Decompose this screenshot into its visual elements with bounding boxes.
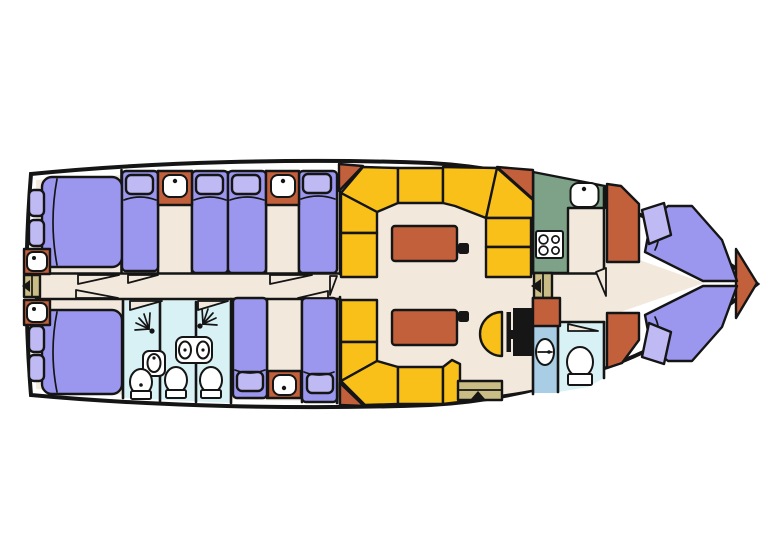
aft-cabin-lower (24, 300, 122, 394)
tap-dot (282, 386, 286, 390)
tap-dot (281, 179, 285, 183)
wardrobe (607, 313, 639, 368)
upper-single-beds (122, 171, 337, 273)
bow-tip-locker (736, 249, 757, 318)
deck-plan-svg (0, 0, 780, 551)
toilet-cistern (166, 390, 186, 398)
tap-dot (582, 187, 586, 191)
pillow (196, 175, 223, 194)
pillow (29, 190, 44, 216)
salon-companionway (458, 381, 502, 400)
washbasin-icon (273, 375, 296, 395)
toilet-cistern (568, 374, 592, 385)
pillow (232, 175, 260, 194)
pillow (29, 355, 44, 381)
double-bed (42, 310, 122, 394)
toilet-cistern (131, 391, 151, 399)
tap-dot (547, 350, 551, 354)
tap-dot (32, 256, 36, 260)
pillow (303, 174, 331, 193)
tap-dot (152, 356, 155, 359)
washbasin-icon (271, 175, 295, 197)
pillow (126, 175, 153, 194)
dinette-table (392, 310, 457, 345)
pillow (29, 220, 44, 246)
table-mount-icon (458, 243, 469, 254)
wardrobe (607, 184, 639, 262)
aft-companionway (22, 275, 40, 297)
tap-dot (173, 179, 177, 183)
toilet-icon (567, 347, 593, 377)
drain-dot (139, 383, 143, 387)
washbasin-icon (27, 303, 47, 322)
washbasin-icon (27, 252, 47, 271)
deck-plan-canvas (0, 0, 780, 551)
cabinet (533, 298, 560, 326)
toilet-cistern (201, 390, 221, 398)
galley-sink-icon (571, 183, 599, 207)
aft-cabin-upper (24, 177, 122, 274)
table-mount-icon (458, 311, 469, 322)
galley-companionway (531, 273, 552, 298)
pillow (237, 372, 263, 391)
pillow (307, 374, 333, 393)
tap-dot (32, 307, 36, 311)
helm-console (513, 308, 532, 356)
double-bed (42, 177, 122, 267)
pillow (29, 326, 44, 352)
washbasin-icon (163, 175, 187, 197)
dinette-table (392, 226, 457, 261)
